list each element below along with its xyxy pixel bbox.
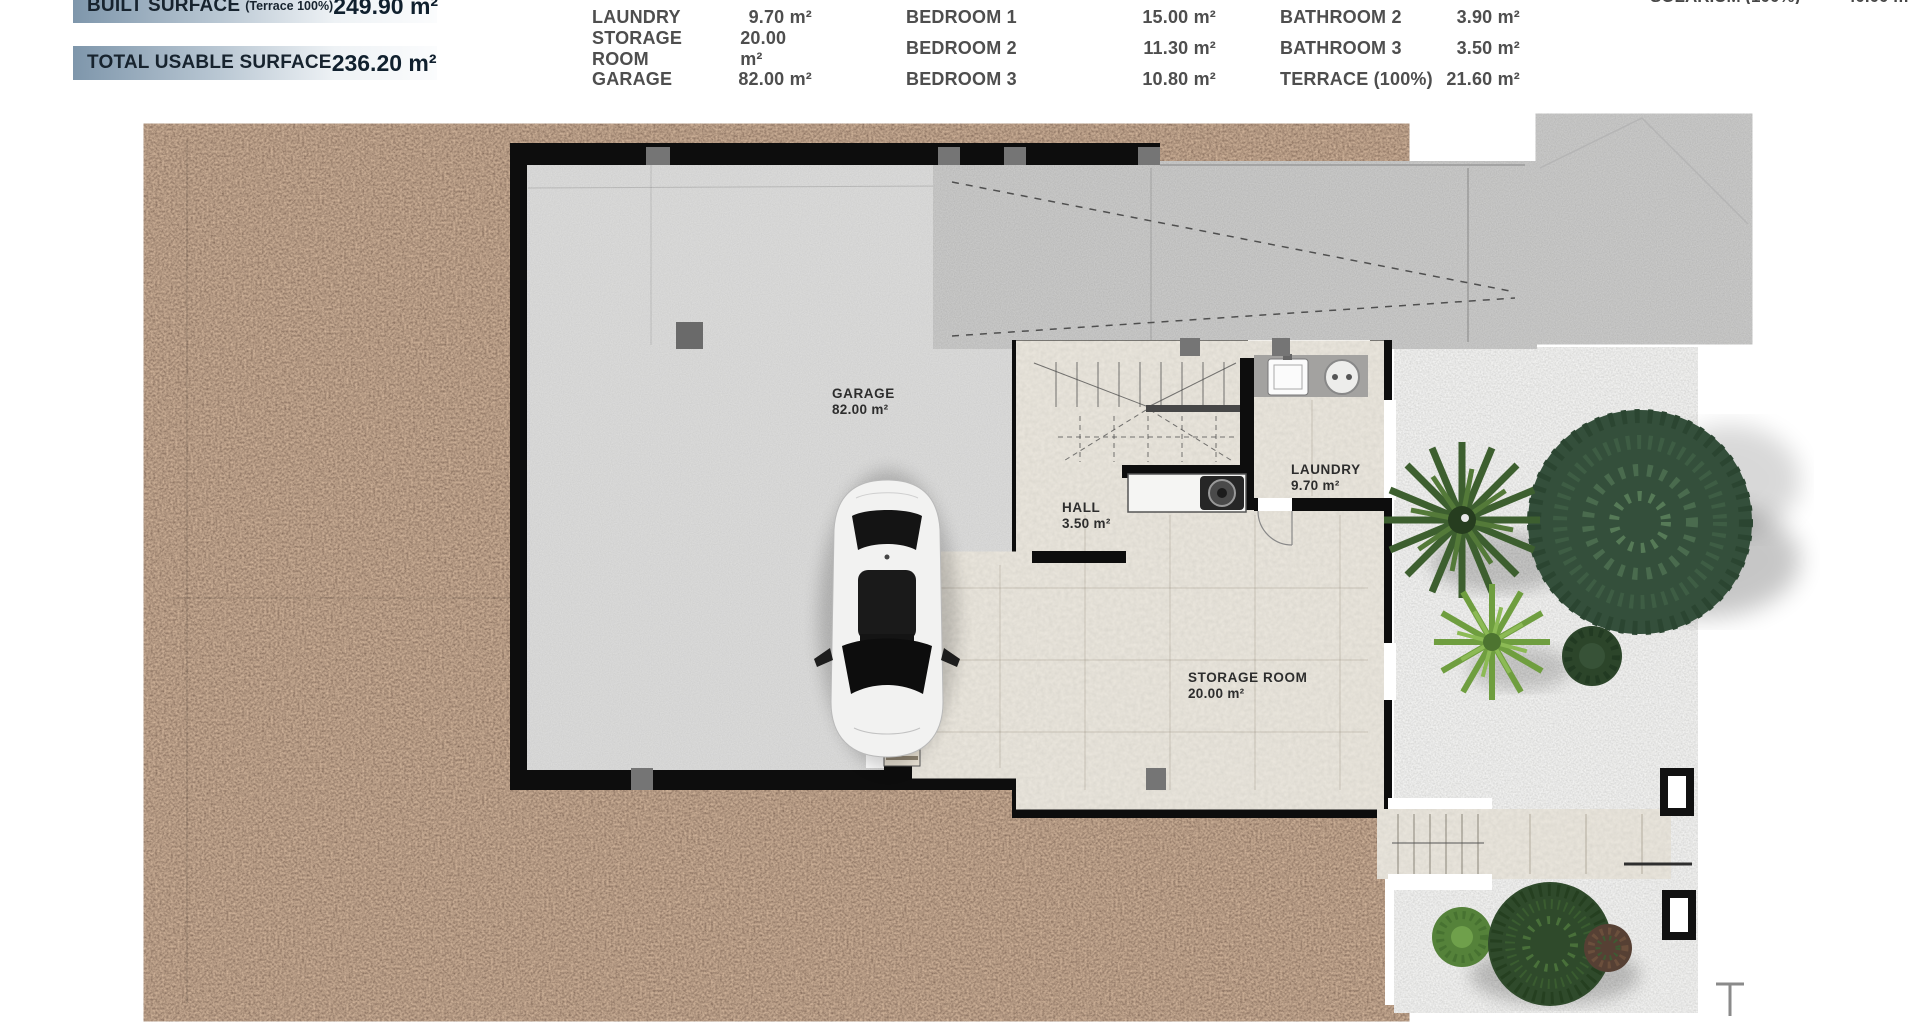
room-label-hall: HALL 3.50 m² [1062, 500, 1111, 532]
corner-gravel [1540, 118, 1748, 340]
room-table-col-3: BATHROOM 2 3.90 m² BATHROOM 3 3.50 m² TE… [1280, 2, 1520, 95]
driveway-ramp [945, 165, 1525, 345]
car [814, 480, 960, 757]
washing-machine [1128, 474, 1246, 512]
room-label-laundry: LAUNDRY 9.70 m² [1291, 462, 1361, 494]
table-row: BEDROOM 3 10.80 m² [906, 64, 1216, 95]
floor-plan-drawing [0, 0, 1920, 1024]
room-table-col-1: LAUNDRY 9.70 m² STORAGE ROOM 20.00 m² GA… [592, 2, 812, 95]
table-row: TERRACE (100%) 21.60 m² [1280, 64, 1520, 95]
antenna-icon [885, 555, 890, 560]
usable-surface-value: 236.20 m² [332, 50, 441, 77]
table-row: BEDROOM 1 15.00 m² [906, 2, 1216, 33]
built-surface-banner: BUILT SURFACE (Terrace 100%) 249.90 m² [73, 0, 437, 23]
solarium-clipped-line: SOLARIUM (100%) 40.00 m² [1650, 0, 1914, 4]
room-table-col-2: BEDROOM 1 15.00 m² BEDROOM 2 11.30 m² BE… [906, 2, 1216, 95]
table-row: STORAGE ROOM 20.00 m² [592, 33, 812, 64]
rear-window [852, 510, 922, 550]
room-label-garage: GARAGE 82.00 m² [832, 386, 895, 418]
table-row: BATHROOM 3 3.50 m² [1280, 33, 1520, 64]
sunroof [858, 570, 916, 640]
built-surface-label: BUILT SURFACE [73, 0, 240, 17]
built-surface-sublabel: (Terrace 100%) [245, 0, 333, 13]
room-label-storage: STORAGE ROOM 20.00 m² [1188, 670, 1307, 702]
table-row: BATHROOM 2 3.90 m² [1280, 2, 1520, 33]
palm-tree [1384, 442, 1540, 598]
table-row: BEDROOM 2 11.30 m² [906, 33, 1216, 64]
laundry-counter [1254, 354, 1368, 397]
usable-surface-banner: TOTAL USABLE SURFACE 236.20 m² [73, 46, 437, 80]
solarium-label: SOLARIUM (100%) [1650, 0, 1800, 4]
bush-small [1562, 626, 1622, 686]
solarium-value: 40.00 m² [1846, 0, 1914, 4]
boiler-icon [1325, 360, 1359, 394]
usable-surface-label: TOTAL USABLE SURFACE [73, 52, 332, 74]
floor-plan-page: BUILT SURFACE (Terrace 100%) 249.90 m² T… [0, 0, 1920, 1024]
section-marker [1716, 984, 1744, 1016]
tree-large [1528, 410, 1752, 634]
built-surface-value: 249.90 m² [333, 0, 442, 20]
